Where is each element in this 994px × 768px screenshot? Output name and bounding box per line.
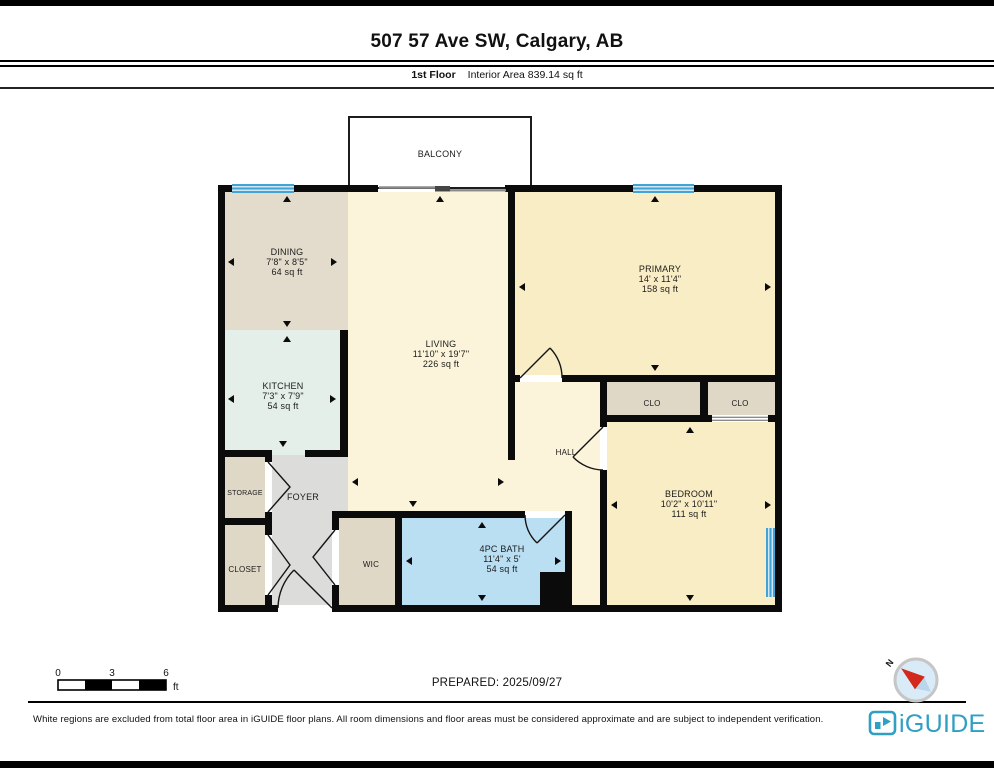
room-foyer-fill-upper: [272, 455, 348, 511]
window-primary: [633, 184, 694, 193]
room-foyer-fill-lower: [272, 511, 332, 605]
floor-label: 1st Floor: [411, 69, 455, 81]
doors: [268, 348, 768, 608]
room-fills: [225, 192, 775, 605]
windows: [232, 184, 775, 597]
window-bedroom: [766, 528, 775, 597]
room-label-dining: DINING 7'8" x 8'5" 64 sq ft: [266, 247, 308, 277]
svg-text:BALCONY: BALCONY: [418, 149, 462, 159]
svg-text:BEDROOM: BEDROOM: [665, 489, 713, 499]
primary-door: [520, 348, 562, 378]
bath-door: [525, 515, 565, 543]
svg-text:54 sq ft: 54 sq ft: [267, 401, 298, 411]
header-rule-1: [0, 60, 994, 62]
room-dining-fill: [225, 192, 348, 330]
walls: [218, 185, 782, 612]
svg-text:4PC BATH: 4PC BATH: [480, 544, 525, 554]
room-kitchen-fill: [225, 330, 340, 455]
footer-rule: [28, 701, 966, 703]
svg-text:111 sq ft: 111 sq ft: [672, 509, 707, 519]
room-bedroom-fill: [607, 422, 775, 605]
room-label-foyer: FOYER: [287, 492, 319, 502]
room-label-wic: WIC: [363, 560, 379, 569]
top-border-bar: [0, 0, 994, 6]
balcony-sliding-door: [379, 186, 506, 192]
closet-bifold-door: [268, 535, 290, 595]
room-label-hall: HALL: [556, 448, 577, 457]
svg-text:7'3" x 7'9": 7'3" x 7'9": [262, 391, 304, 401]
svg-text:11'10" x 19'7": 11'10" x 19'7": [413, 349, 470, 359]
svg-text:KITCHEN: KITCHEN: [263, 381, 304, 391]
svg-text:54 sq ft: 54 sq ft: [486, 564, 517, 574]
svg-text:DINING: DINING: [271, 247, 304, 257]
room-label-living: LIVING 11'10" x 19'7" 226 sq ft: [413, 339, 470, 369]
room-living-fill: [348, 192, 508, 511]
compass-north-label: N: [884, 658, 896, 669]
room-hall-lower-fill: [572, 511, 600, 605]
room-label-closet: CLOSET: [228, 565, 261, 574]
entry-door: [278, 570, 332, 608]
room-storage-fill: [225, 457, 265, 518]
bath-notch: [540, 572, 572, 605]
room-closet-fill: [225, 525, 265, 605]
room-label-kitchen: KITCHEN 7'3" x 7'9" 54 sq ft: [262, 381, 304, 411]
room-label-storage: STORAGE: [227, 490, 263, 497]
room-label-balcony: BALCONY: [418, 149, 462, 159]
dimension-arrows: [228, 196, 771, 601]
room-clo1-fill: [607, 382, 700, 415]
room-hall-fill: [508, 382, 600, 511]
disclaimer-text: White regions are excluded from total fl…: [33, 714, 953, 725]
bottom-border-bar: [0, 761, 994, 768]
clo2-sliding-door: [712, 417, 768, 420]
room-label-bath: 4PC BATH 11'4" x 5' 54 sq ft: [480, 544, 525, 574]
svg-text:11'4" x 5': 11'4" x 5': [483, 554, 521, 564]
svg-text:64 sq ft: 64 sq ft: [271, 267, 302, 277]
svg-text:FOYER: FOYER: [287, 492, 319, 502]
window-dining: [232, 184, 294, 193]
floor-plan-drawing: BALCONY DINING 7'8" x 8'5" 64 sq ft KITC…: [0, 0, 994, 768]
svg-text:CLOSET: CLOSET: [228, 565, 261, 574]
page-title: 507 57 Ave SW, Calgary, AB: [0, 31, 994, 53]
svg-text:HALL: HALL: [556, 448, 577, 457]
svg-text:CLO: CLO: [731, 399, 748, 408]
svg-text:STORAGE: STORAGE: [227, 490, 263, 497]
header-rule-2: [0, 65, 994, 67]
floorplan-page: 507 57 Ave SW, Calgary, AB 1st FloorInte…: [0, 0, 994, 768]
bedroom-door: [573, 427, 603, 470]
wic-bifold-door: [313, 530, 335, 585]
room-label-clo1: CLO: [643, 399, 660, 408]
svg-text:WIC: WIC: [363, 560, 379, 569]
floor-subtitle: 1st FloorInterior Area 839.14 sq ft: [0, 69, 994, 81]
svg-text:LIVING: LIVING: [426, 339, 457, 349]
svg-text:158 sq ft: 158 sq ft: [642, 284, 679, 294]
storage-bifold-door: [268, 462, 290, 512]
room-bath-fill: [402, 518, 565, 605]
svg-text:PRIMARY: PRIMARY: [639, 264, 681, 274]
room-label-bedroom: BEDROOM 10'2" x 10'11" 111 sq ft: [661, 489, 718, 519]
room-primary-fill: [515, 192, 775, 375]
svg-text:14' x 11'4": 14' x 11'4": [639, 274, 682, 284]
room-clo2-fill: [708, 382, 775, 415]
svg-text:226 sq ft: 226 sq ft: [423, 359, 460, 369]
svg-text:10'2" x 10'11": 10'2" x 10'11": [661, 499, 718, 509]
header-rule-3: [0, 87, 994, 89]
brand-wordmark: iGUIDE: [899, 709, 986, 739]
svg-text:CLO: CLO: [643, 399, 660, 408]
interior-area-label: Interior Area 839.14 sq ft: [468, 69, 583, 81]
prepared-date: PREPARED: 2025/09/27: [0, 677, 994, 689]
svg-text:7'8" x 8'5": 7'8" x 8'5": [266, 257, 308, 267]
balcony-outline: [349, 117, 531, 188]
room-label-clo2: CLO: [731, 399, 748, 408]
room-wic-fill: [339, 518, 395, 605]
room-label-primary: PRIMARY 14' x 11'4" 158 sq ft: [639, 264, 682, 294]
